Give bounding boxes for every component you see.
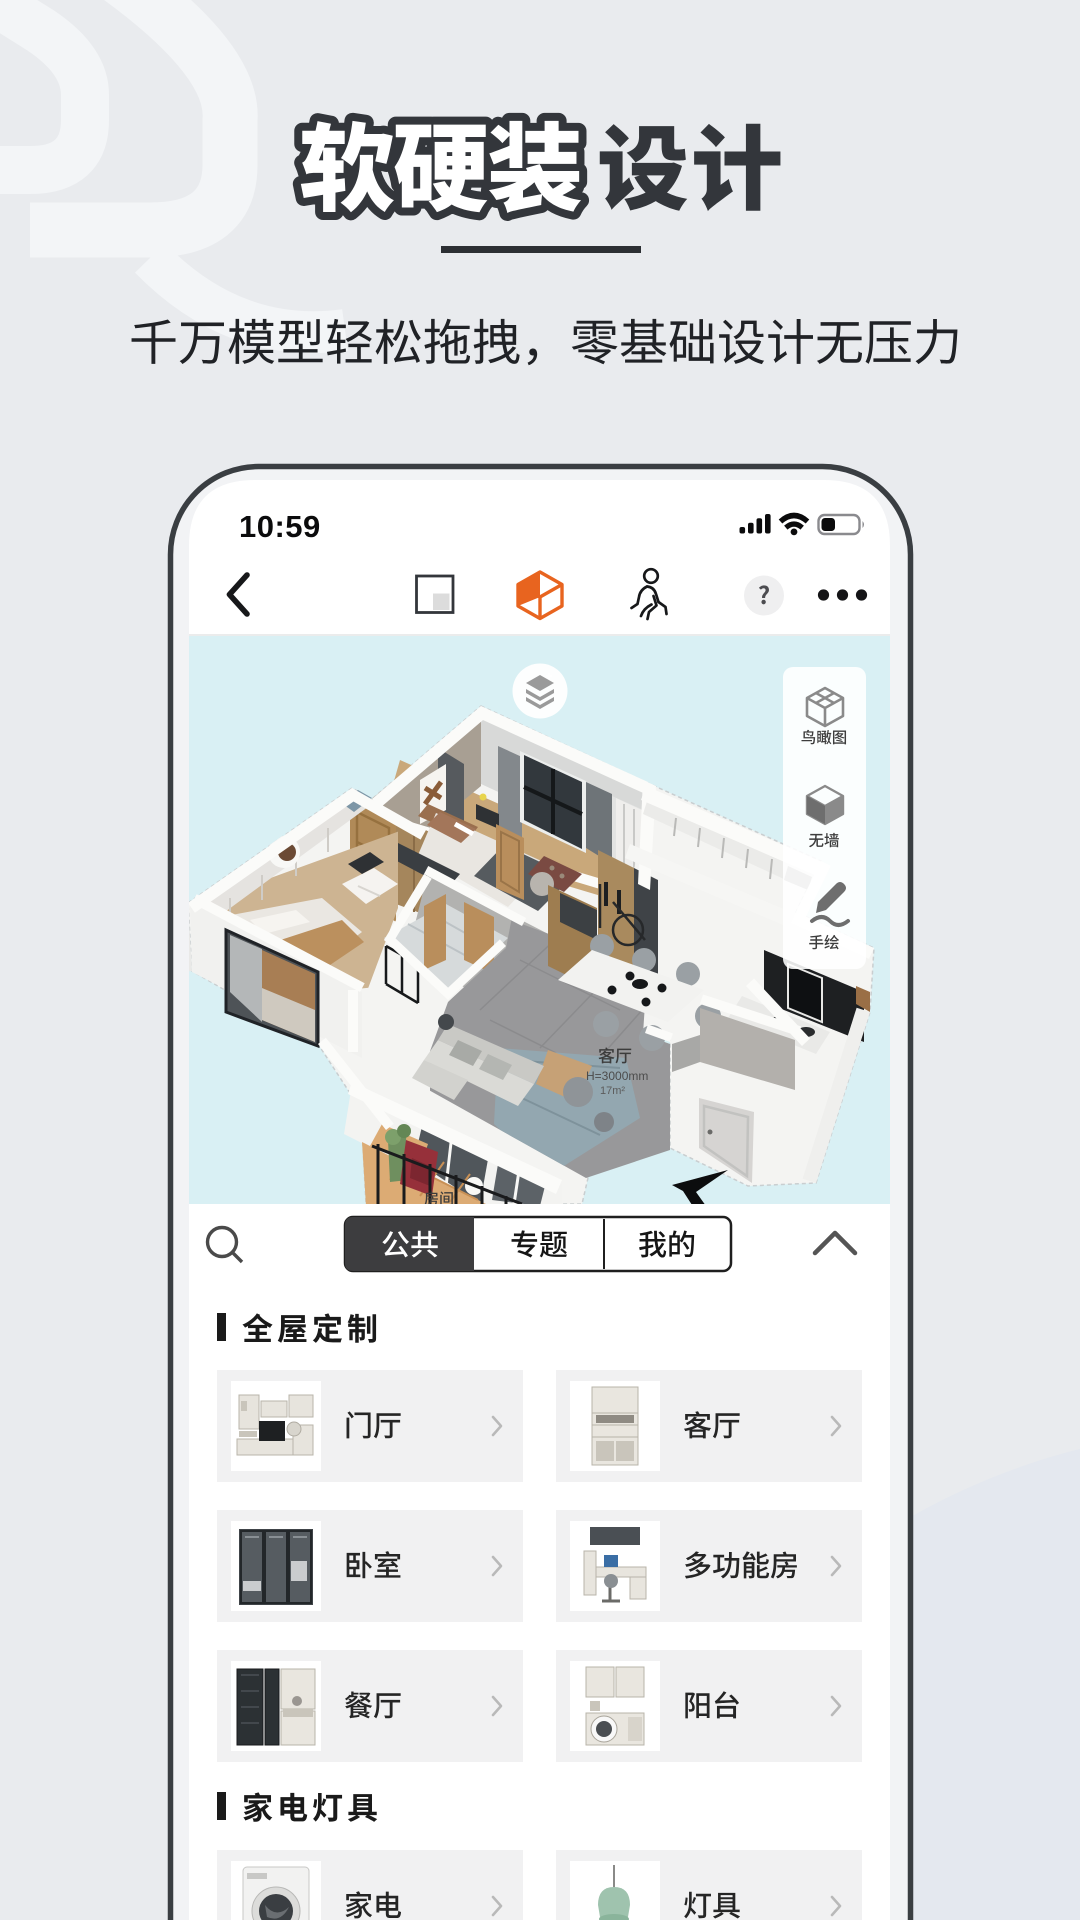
- svg-text:17m²: 17m²: [600, 1085, 625, 1097]
- svg-text:H=3000mm: H=3000mm: [586, 1069, 648, 1083]
- svg-text:10:59: 10:59: [239, 509, 321, 544]
